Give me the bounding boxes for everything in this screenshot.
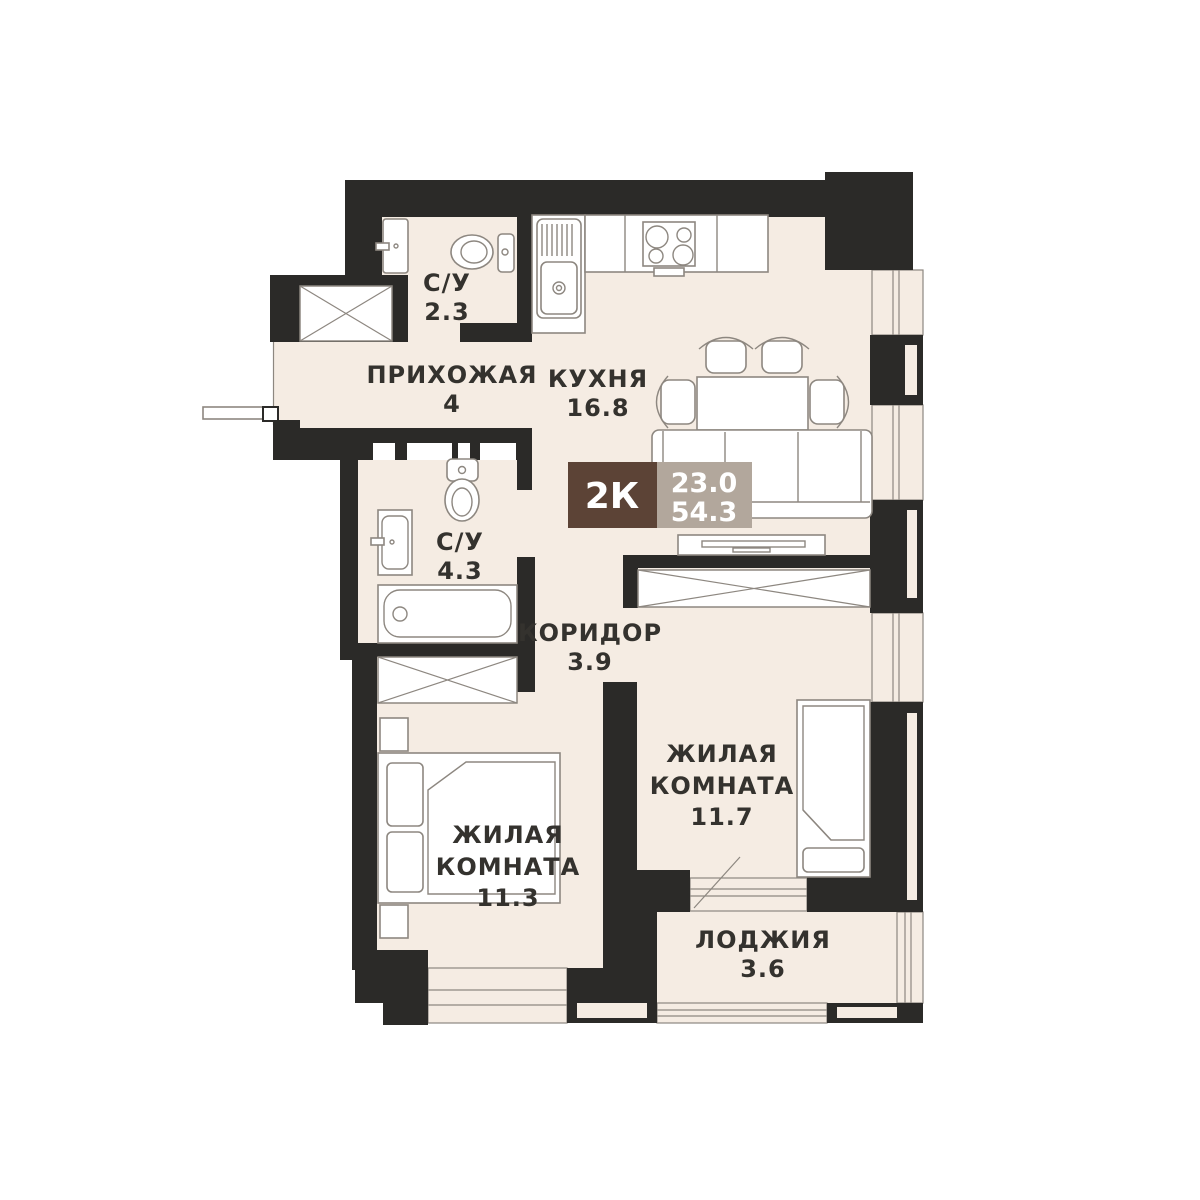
label-corridor: КОРИДОР — [518, 619, 662, 647]
label-bath-mid-area: 4.3 — [437, 557, 483, 585]
label-room-left-1: ЖИЛАЯ — [452, 821, 563, 849]
nightstand-top — [380, 718, 408, 751]
kitchen-sink-basin — [541, 262, 577, 314]
wall-entry-left — [273, 420, 300, 460]
window-kitchen-large — [872, 405, 923, 500]
stove-handle — [654, 268, 684, 276]
dining-table — [697, 377, 808, 430]
wall-loggia-corner-right — [903, 1003, 923, 1023]
window-loggia-bottom — [657, 1003, 827, 1023]
nightstand-bottom — [380, 905, 408, 938]
pillow — [387, 763, 423, 826]
wall-bottom-left-step — [383, 1003, 428, 1025]
door-jamb — [263, 407, 278, 421]
apartment-badge[interactable]: 2К 23.0 54.3 — [568, 462, 752, 528]
wall-balcony-left — [637, 870, 690, 912]
entry-door — [203, 407, 278, 421]
label-room-left-area: 11.3 — [476, 884, 539, 912]
wall-left-upper — [345, 180, 382, 280]
label-hallway-area: 4 — [443, 390, 461, 418]
wall-bath-mid-left — [340, 432, 358, 660]
shaft-box-mid — [378, 657, 517, 703]
wall-top — [345, 180, 825, 217]
window-kitchen-small — [872, 270, 923, 335]
window-loggia-right — [897, 912, 923, 1003]
label-bath-top-area: 2.3 — [424, 298, 470, 326]
wall-bottom-left-corner — [355, 950, 428, 1003]
pillow — [803, 848, 864, 872]
label-loggia: ЛОДЖИЯ — [695, 926, 831, 954]
floor-plan-drawing: 2К 23.0 54.3 С/У 2.3 ПРИХОЖАЯ 4 КУХНЯ 16… — [0, 0, 1200, 1200]
floor-plan[interactable]: 2К 23.0 54.3 С/У 2.3 ПРИХОЖАЯ 4 КУХНЯ 16… — [0, 0, 1200, 1200]
bathtub — [378, 585, 517, 643]
wall-vertical-mid — [517, 428, 532, 490]
label-bath-mid: С/У — [436, 528, 484, 556]
label-loggia-area: 3.6 — [740, 955, 786, 983]
badge-total-area: 54.3 — [671, 497, 738, 528]
tv-console — [678, 535, 825, 555]
shaft-box-top — [300, 286, 392, 341]
wardrobe-room-right — [638, 570, 870, 607]
toilet-top — [451, 234, 514, 272]
label-room-left-2: КОМНАТА — [436, 853, 581, 881]
wall-kitchen-room-right — [623, 555, 872, 568]
kitchen-sink-ribs — [542, 224, 572, 256]
wall-bedroom-left — [352, 655, 377, 970]
label-hallway: ПРИХОЖАЯ — [366, 361, 537, 389]
badge-living-area: 23.0 — [671, 468, 738, 499]
wall-vertical-upper — [517, 180, 532, 340]
toilet-mid — [445, 459, 479, 521]
label-room-right-2: КОМНАТА — [650, 772, 795, 800]
window-bedroom-left — [428, 968, 567, 1023]
pillow — [387, 832, 423, 892]
label-kitchen: КУХНЯ — [548, 365, 648, 393]
label-kitchen-area: 16.8 — [566, 394, 629, 422]
single-bed — [797, 700, 870, 877]
badge-type-label: 2К — [585, 476, 639, 517]
window-room-right — [872, 613, 923, 702]
wall-wardrobe-left — [623, 568, 638, 608]
label-room-right-area: 11.7 — [690, 803, 753, 831]
label-corridor-area: 3.9 — [567, 648, 613, 676]
wall-top-right-corner — [825, 172, 913, 270]
wall-bathtub-bottom — [352, 643, 520, 657]
label-room-right-1: ЖИЛАЯ — [666, 740, 777, 768]
label-bath-top: С/У — [423, 269, 471, 297]
